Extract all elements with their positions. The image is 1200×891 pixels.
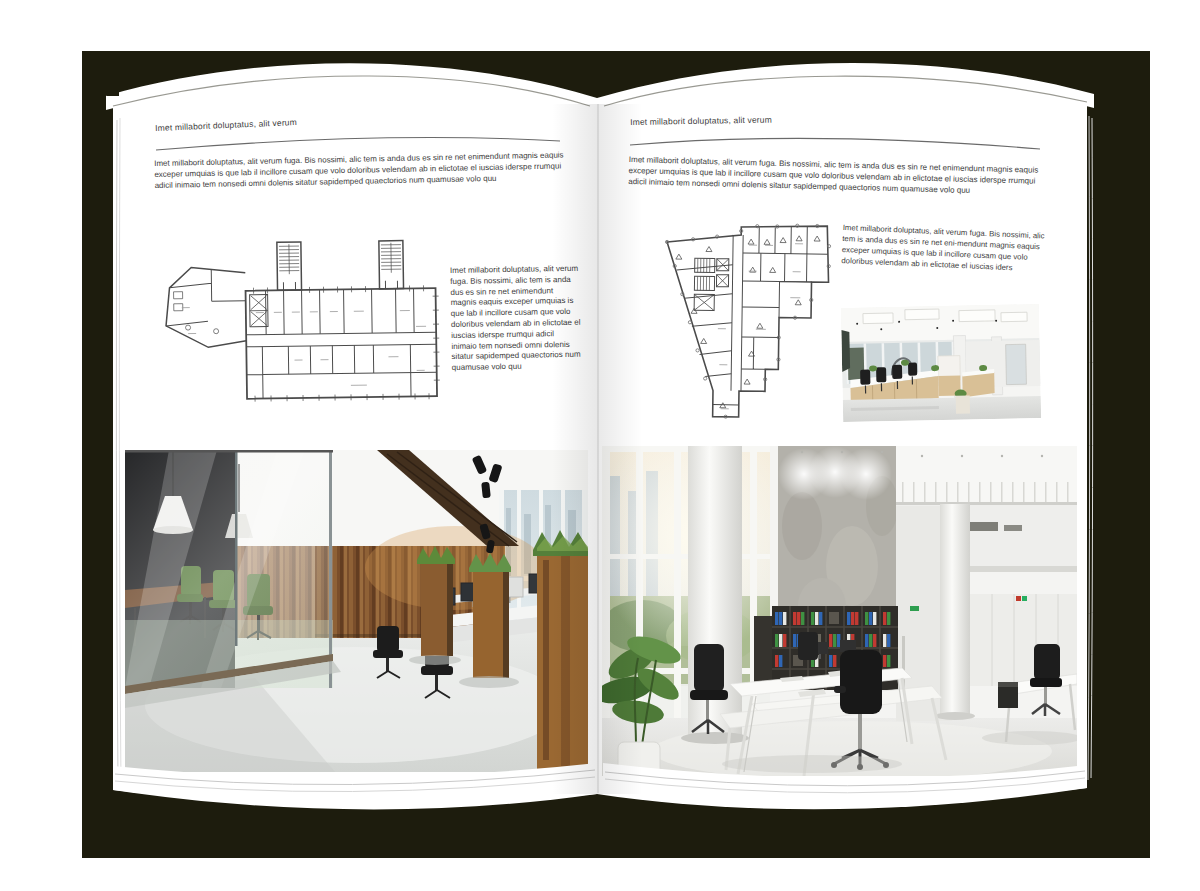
floor-plan-right [647, 218, 838, 421]
exit-sign [910, 606, 919, 611]
magazine-spread-mockup: Imet millaborit doluptatus, alit verum I… [0, 0, 1200, 891]
plan-right-columns [663, 222, 831, 419]
photo-loft-office [125, 450, 588, 772]
right-page-side-text: Imet millaborit doluptatus, alit verum f… [841, 222, 1045, 274]
photo-office-small [841, 304, 1041, 422]
floor-plan-left [157, 226, 450, 420]
plan-right-markers [674, 234, 820, 409]
corner-notch-right [1079, 70, 1093, 84]
corner-notch-left [107, 76, 119, 96]
left-page-side-text: Imet millaborit doluptatus, alit verum f… [450, 264, 582, 374]
photo-office-atrium [602, 446, 1077, 776]
